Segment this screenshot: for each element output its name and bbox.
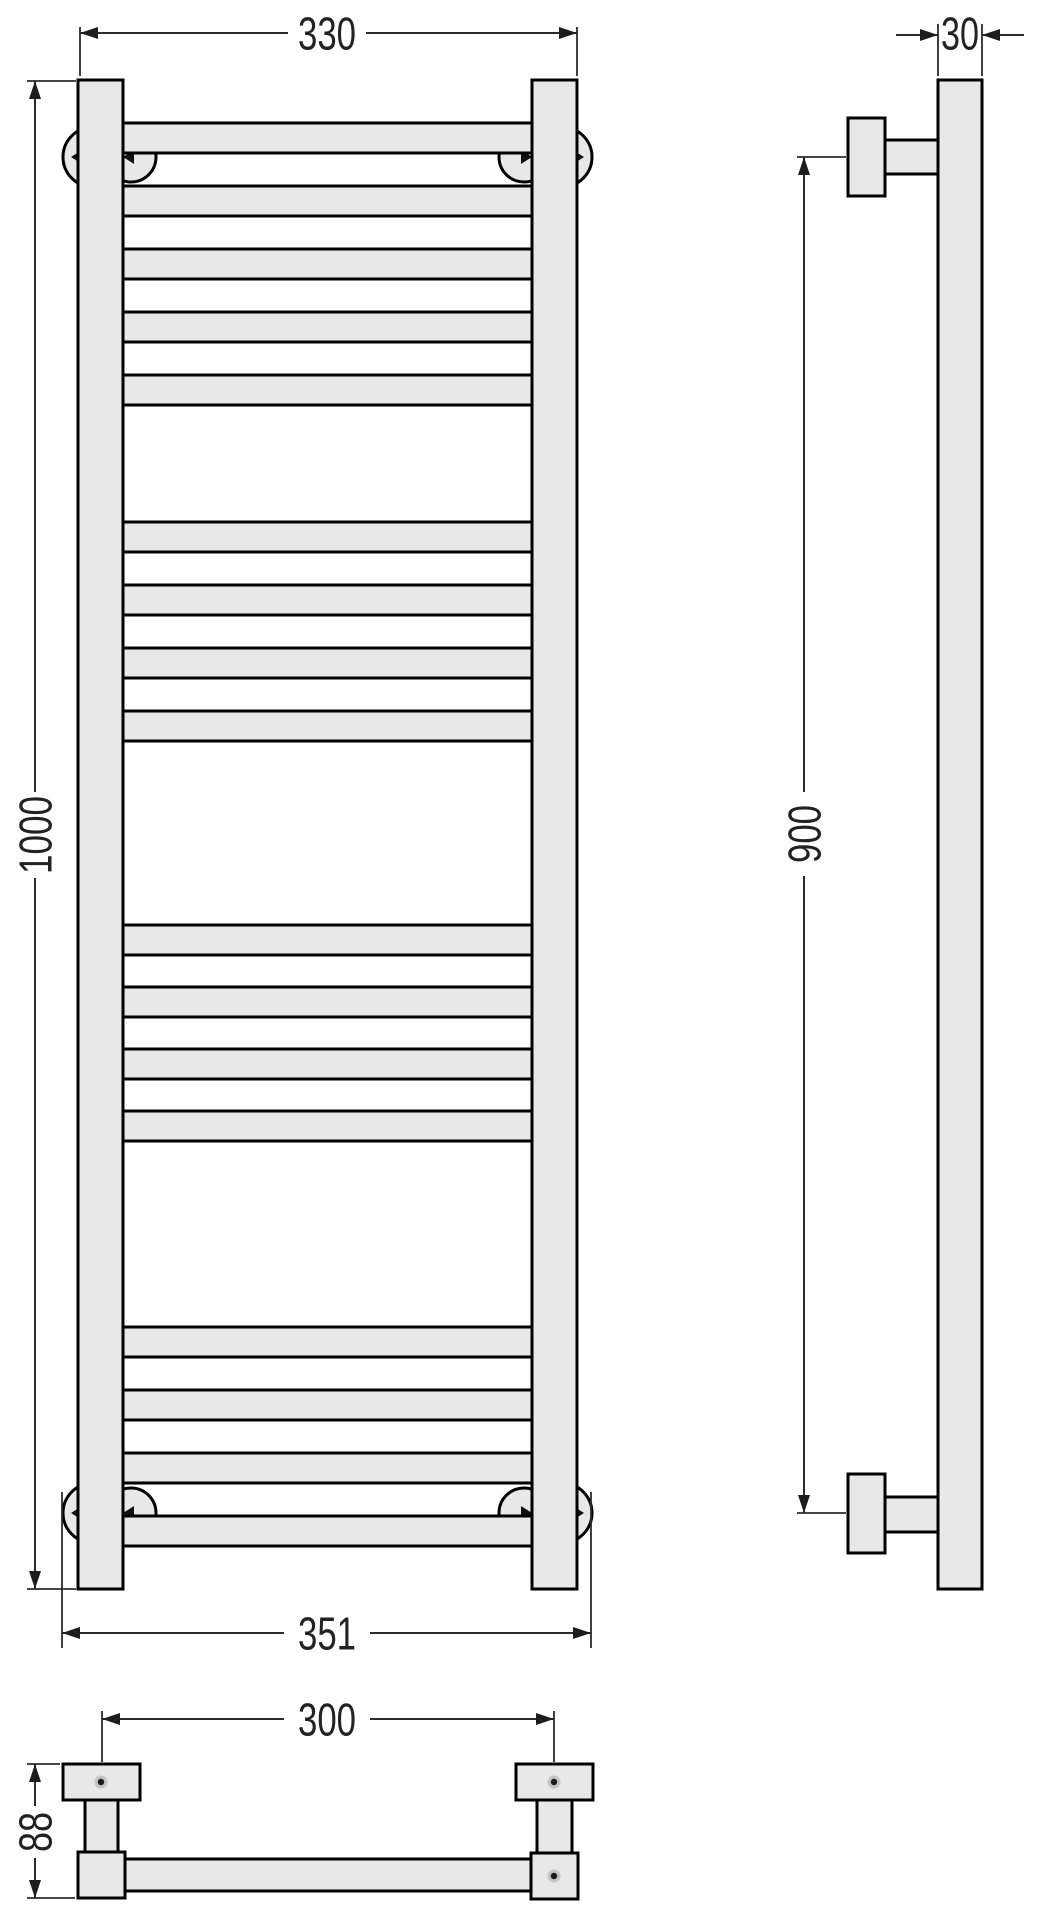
arrowhead-icon: [798, 157, 810, 175]
arrowhead-icon: [559, 27, 577, 39]
rung: [123, 925, 532, 955]
dim-label-top-width: 330: [298, 8, 356, 60]
rung: [123, 648, 532, 678]
side-bracket-pipe-top: [885, 140, 938, 174]
arrowhead-icon: [80, 27, 98, 39]
screw-dot-icon: [95, 1776, 108, 1789]
rung: [123, 249, 532, 279]
rung: [123, 186, 532, 216]
dim-side-tube: 30: [896, 8, 1024, 76]
side-bracket-plate-bottom: [848, 1474, 885, 1553]
dim-front-height: 1000: [10, 81, 76, 1589]
arrowhead-icon: [29, 1571, 41, 1589]
rung: [123, 711, 532, 741]
dim-plan-mount-spacing: 300: [102, 1694, 554, 1762]
side-post-profile: [938, 80, 982, 1589]
rung: [123, 123, 532, 153]
rung: [123, 585, 532, 615]
arrowhead-icon: [29, 81, 41, 99]
arrowhead-icon: [920, 29, 938, 41]
dim-label-tube: 30: [941, 8, 979, 60]
dim-front-top-width: 330: [80, 8, 577, 76]
drawing-canvas: 330 1000 351 900 30: [0, 0, 1042, 1920]
rung: [123, 1453, 532, 1483]
arrowhead-icon: [62, 1627, 80, 1639]
plan-bracket-pipe-right: [537, 1800, 572, 1853]
plan-post-section-left: [78, 1852, 125, 1898]
rung: [123, 312, 532, 342]
dim-label-bottom-width: 351: [298, 1608, 356, 1660]
arrowhead-icon: [798, 1495, 810, 1513]
plan-bottom-rung: [123, 1859, 533, 1891]
rung: [123, 522, 532, 552]
rung: [123, 987, 532, 1017]
rung: [123, 375, 532, 405]
screw-dot-icon: [548, 1870, 561, 1883]
arrowhead-icon: [573, 1627, 591, 1639]
front-left-post: [78, 80, 123, 1589]
screw-dot-icon: [548, 1776, 561, 1789]
rung: [123, 1327, 532, 1357]
front-view: [63, 80, 592, 1589]
plan-view: [63, 1764, 593, 1899]
rung: [123, 1516, 532, 1546]
dim-label-height: 1000: [10, 796, 62, 874]
plan-bracket-pipe-left: [85, 1800, 118, 1852]
dim-label-depth: 88: [10, 1812, 62, 1852]
arrowhead-icon: [102, 1713, 120, 1725]
arrowhead-icon: [536, 1713, 554, 1725]
arrowhead-icon: [29, 1764, 41, 1782]
arrowhead-icon: [982, 29, 1000, 41]
rung: [123, 1390, 532, 1420]
side-bracket-plate-top: [848, 118, 885, 196]
dim-side-mount-height: 900: [779, 157, 846, 1513]
side-bracket-pipe-bottom: [885, 1497, 938, 1532]
dim-label-mount-height: 900: [779, 805, 831, 863]
dim-label-mount-spacing: 300: [298, 1694, 356, 1746]
front-right-post: [532, 80, 577, 1589]
side-view: [848, 80, 982, 1589]
rung: [123, 1049, 532, 1079]
arrowhead-icon: [29, 1880, 41, 1898]
rung: [123, 1111, 532, 1141]
towel-rail-technical-drawing: 330 1000 351 900 30: [0, 0, 1042, 1920]
